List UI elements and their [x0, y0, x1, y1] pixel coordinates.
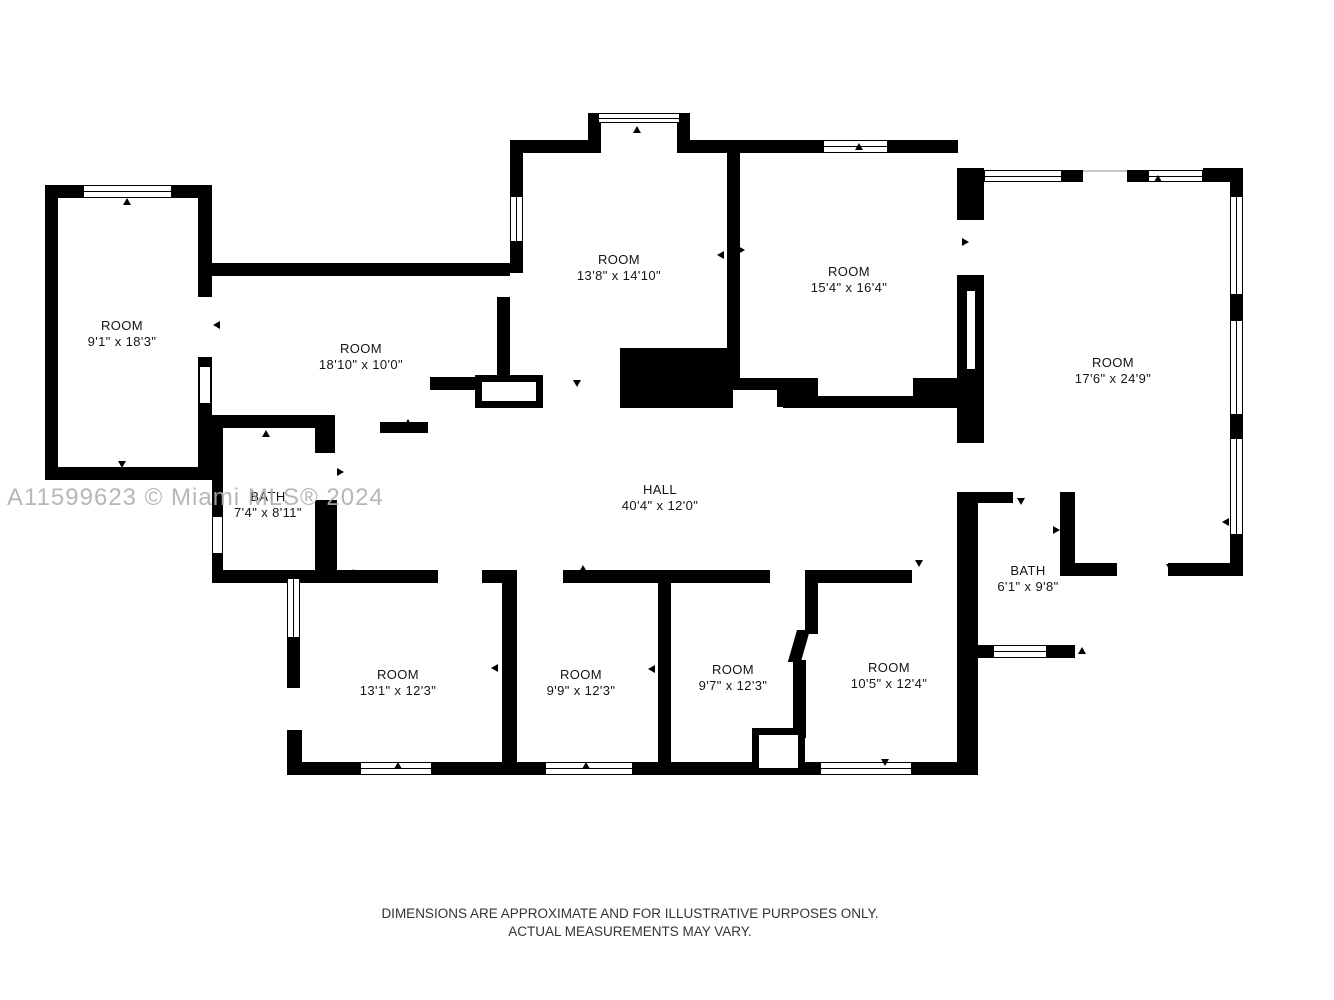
wall [315, 500, 337, 583]
room-dims: 13'1" x 12'3" [360, 683, 437, 699]
window [820, 762, 912, 775]
room-label-13-8: ROOM 13'8" x 14'10" [577, 252, 661, 284]
wall [45, 467, 212, 480]
wall [1127, 170, 1148, 182]
wall [957, 560, 978, 775]
wall [45, 185, 58, 480]
wall [287, 638, 300, 688]
wall [805, 570, 818, 634]
door-marker [1166, 564, 1174, 571]
wall [315, 415, 335, 453]
closet [475, 375, 543, 408]
door-marker [648, 665, 655, 673]
room-label-13-1: ROOM 13'1" x 12'3" [360, 667, 437, 699]
wall [957, 168, 984, 220]
mls-watermark: A11599623 © Miami MLS® 2024 [7, 484, 384, 512]
window [993, 645, 1047, 658]
window [1230, 320, 1243, 416]
door-marker [633, 126, 641, 133]
door-marker [118, 461, 126, 468]
door-marker [394, 762, 402, 769]
wall [1230, 168, 1243, 198]
wall [788, 630, 810, 662]
room-dims: 9'7" x 12'3" [699, 678, 768, 694]
door-marker [717, 251, 724, 259]
opening-line [1083, 170, 1127, 172]
room-dims: 9'9" x 12'3" [547, 683, 616, 699]
room-label-17-6: ROOM 17'6" x 24'9" [1075, 355, 1152, 387]
room-label-15-4: ROOM 15'4" x 16'4" [811, 264, 888, 296]
window [984, 170, 1062, 182]
disclaimer: DIMENSIONS ARE APPROXIMATE AND FOR ILLUS… [381, 905, 878, 941]
wall [510, 140, 594, 153]
room-name: ROOM [699, 662, 768, 678]
room-name: ROOM [360, 667, 437, 683]
door-marker [664, 665, 671, 673]
door-marker [337, 468, 344, 476]
door-marker [969, 526, 976, 534]
floor-plan: ROOM 9'1" x 18'3" ROOM 18'10" x 10'0" RO… [0, 0, 1334, 1000]
room-dims: 18'10" x 10'0" [319, 357, 403, 373]
room-name: ROOM [88, 318, 157, 334]
room-dims: 13'8" x 14'10" [577, 268, 661, 284]
door-marker [290, 665, 297, 673]
door-marker [962, 238, 969, 246]
wall [1168, 563, 1243, 576]
door-marker [573, 380, 581, 387]
door-marker [213, 321, 220, 329]
disclaimer-line-2: ACTUAL MEASUREMENTS MAY VARY. [381, 923, 878, 941]
room-dims: 9'1" x 18'3" [88, 334, 157, 350]
door-marker [862, 398, 870, 405]
wall [793, 660, 806, 738]
wall [1230, 414, 1243, 440]
room-dims: 40'4" x 12'0" [622, 498, 699, 514]
room-label-10-5: ROOM 10'5" x 12'4" [851, 660, 928, 692]
door-marker [579, 565, 587, 572]
wall-mass [620, 348, 733, 408]
wall [810, 570, 912, 583]
wall [1060, 492, 1075, 576]
room-name: ROOM [1075, 355, 1152, 371]
window [598, 113, 680, 123]
wall [1230, 294, 1243, 322]
door-marker [399, 266, 407, 273]
door-marker [262, 430, 270, 437]
wall [913, 378, 984, 408]
room-label-9-9: ROOM 9'9" x 12'3" [547, 667, 616, 699]
window [287, 578, 300, 638]
wall [430, 377, 475, 390]
room-label-bath-6-1: BATH 6'1" x 9'8" [997, 563, 1058, 595]
window [1230, 438, 1243, 536]
wall-niche [199, 366, 211, 404]
room-label-9-1: ROOM 9'1" x 18'3" [88, 318, 157, 350]
room-dims: 17'6" x 24'9" [1075, 371, 1152, 387]
room-name: ROOM [577, 252, 661, 268]
room-label-9-7: ROOM 9'7" x 12'3" [699, 662, 768, 694]
door-marker [738, 246, 745, 254]
door-marker [709, 574, 717, 581]
door-marker [1053, 526, 1060, 534]
room-dims: 15'4" x 16'4" [811, 280, 888, 296]
wall [502, 570, 517, 775]
door-marker [881, 759, 889, 766]
window [510, 196, 523, 242]
door-marker [349, 569, 357, 576]
room-name: BATH [997, 563, 1058, 579]
door-marker [1222, 518, 1229, 526]
room-name: HALL [622, 482, 699, 498]
wall [497, 297, 510, 380]
door-marker [582, 762, 590, 769]
room-dims: 10'5" x 12'4" [851, 676, 928, 692]
room-name: ROOM [319, 341, 403, 357]
door-marker [491, 664, 498, 672]
disclaimer-line-1: DIMENSIONS ARE APPROXIMATE AND FOR ILLUS… [381, 905, 878, 923]
wall [727, 140, 740, 380]
wall [510, 242, 523, 273]
wall [212, 263, 510, 276]
wall [957, 408, 984, 443]
door-marker [915, 560, 923, 567]
wall-niche [212, 516, 223, 554]
door-marker [1017, 498, 1025, 505]
door-marker [123, 198, 131, 205]
room-name: ROOM [811, 264, 888, 280]
wall [957, 492, 1013, 503]
room-name: ROOM [851, 660, 928, 676]
door-marker [1078, 647, 1086, 654]
door-marker [1154, 175, 1162, 182]
wall [198, 185, 212, 297]
door-marker [509, 664, 516, 672]
door-marker [855, 143, 863, 150]
room-name: ROOM [547, 667, 616, 683]
window [83, 185, 172, 198]
wall-niche [966, 290, 976, 370]
wall [1062, 170, 1083, 182]
window [1230, 196, 1243, 296]
room-label-18-10: ROOM 18'10" x 10'0" [319, 341, 403, 373]
closet [752, 728, 805, 775]
room-dims: 6'1" x 9'8" [997, 579, 1058, 595]
room-label-hall: HALL 40'4" x 12'0" [622, 482, 699, 514]
door-marker [404, 419, 412, 426]
